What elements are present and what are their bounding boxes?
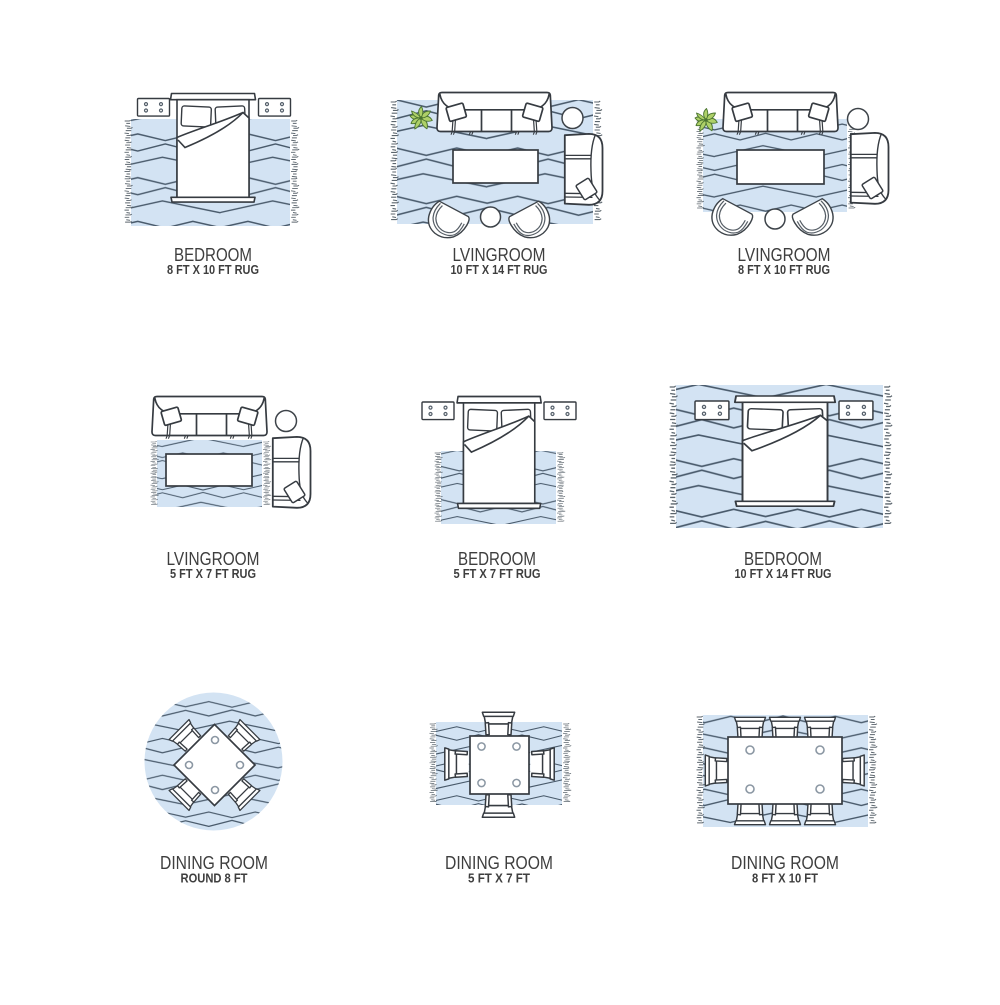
svg-text:10 FT X 14 FT RUG: 10 FT X 14 FT RUG [735, 567, 832, 581]
svg-text:BEDROOM: BEDROOM [744, 548, 822, 569]
svg-text:DINING ROOM: DINING ROOM [160, 852, 268, 873]
svg-text:BEDROOM: BEDROOM [174, 244, 252, 265]
svg-text:8 FT X 10 FT RUG: 8 FT X 10 FT RUG [738, 263, 830, 277]
svg-text:8 FT X 10 FT: 8 FT X 10 FT [752, 872, 818, 886]
svg-text:5 FT X 7 FT: 5 FT X 7 FT [468, 872, 530, 886]
svg-text:10 FT X 14 FT RUG: 10 FT X 14 FT RUG [451, 263, 548, 277]
svg-text:5 FT X 7 FT RUG: 5 FT X 7 FT RUG [454, 567, 541, 581]
svg-text:LVINGROOM: LVINGROOM [738, 244, 831, 265]
svg-text:LVINGROOM: LVINGROOM [453, 244, 546, 265]
svg-text:DINING ROOM: DINING ROOM [445, 852, 553, 873]
svg-text:ROUND 8 FT: ROUND 8 FT [181, 872, 248, 886]
svg-text:5 FT X 7 FT RUG: 5 FT X 7 FT RUG [170, 567, 256, 581]
svg-text:8 FT X 10 FT RUG: 8 FT X 10 FT RUG [167, 263, 259, 277]
svg-text:LVINGROOM: LVINGROOM [167, 548, 260, 569]
svg-text:DINING ROOM: DINING ROOM [731, 852, 839, 873]
svg-text:BEDROOM: BEDROOM [458, 548, 536, 569]
